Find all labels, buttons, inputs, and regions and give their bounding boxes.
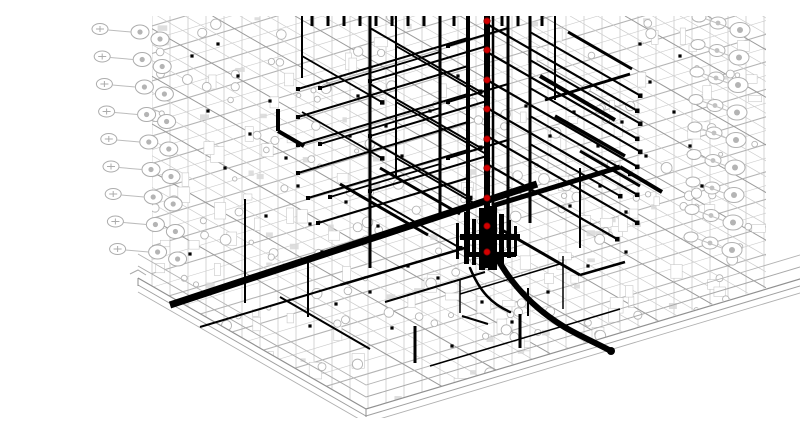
valve-marker — [484, 106, 490, 112]
valve-marker — [484, 47, 490, 53]
valve-marker — [484, 195, 490, 201]
valve-marker — [484, 223, 490, 229]
valve-marker — [484, 165, 490, 171]
model-viewport[interactable] — [40, 16, 800, 418]
building-wireframe-texture — [40, 16, 800, 418]
valve-marker — [484, 18, 490, 24]
building-mep-isometric — [40, 16, 800, 418]
valve-marker — [484, 77, 490, 83]
valve-marker — [484, 136, 490, 142]
valve-marker — [484, 249, 490, 255]
